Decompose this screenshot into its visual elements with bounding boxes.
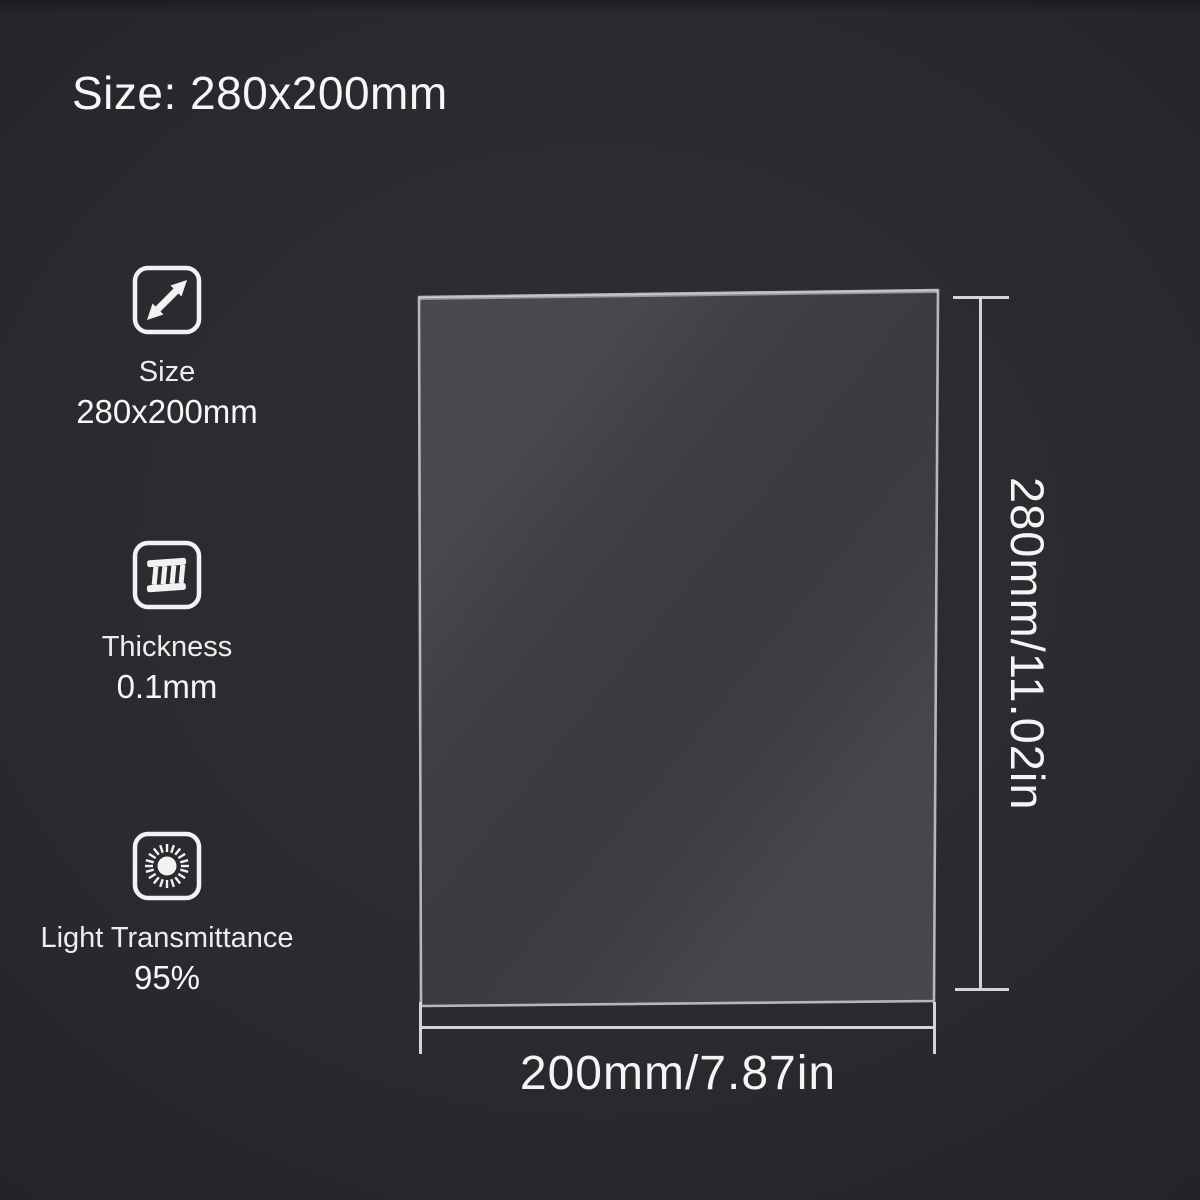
- page-title: Size: 280x200mm: [72, 66, 448, 120]
- width-dimension-label: 200mm/7.87in: [420, 1046, 936, 1101]
- spec-size-label: Size: [139, 356, 195, 389]
- spec-light-transmittance: Light Transmittance 95%: [7, 830, 327, 997]
- resize-diagonal-icon: [131, 264, 203, 336]
- transparent-sheet: [414, 287, 942, 1009]
- light-transmittance-icon: [131, 830, 203, 902]
- spec-light-transmittance-value: 95%: [134, 959, 200, 997]
- height-dimension-label: 280mm/11.02in: [1000, 297, 1055, 991]
- height-dimension-line: [979, 297, 982, 990]
- spec-thickness: Thickness 0.1mm: [7, 539, 327, 706]
- width-dimension-line: [420, 1026, 936, 1029]
- thickness-icon: [131, 539, 203, 611]
- spec-thickness-label: Thickness: [102, 631, 233, 664]
- product-spec-image: Size: 280x200mm Size 280x200mm: [0, 0, 1200, 1200]
- spec-light-transmittance-label: Light Transmittance: [40, 922, 293, 955]
- spec-thickness-value: 0.1mm: [117, 668, 218, 706]
- spec-size: Size 280x200mm: [7, 264, 327, 431]
- spec-size-value: 280x200mm: [76, 393, 258, 431]
